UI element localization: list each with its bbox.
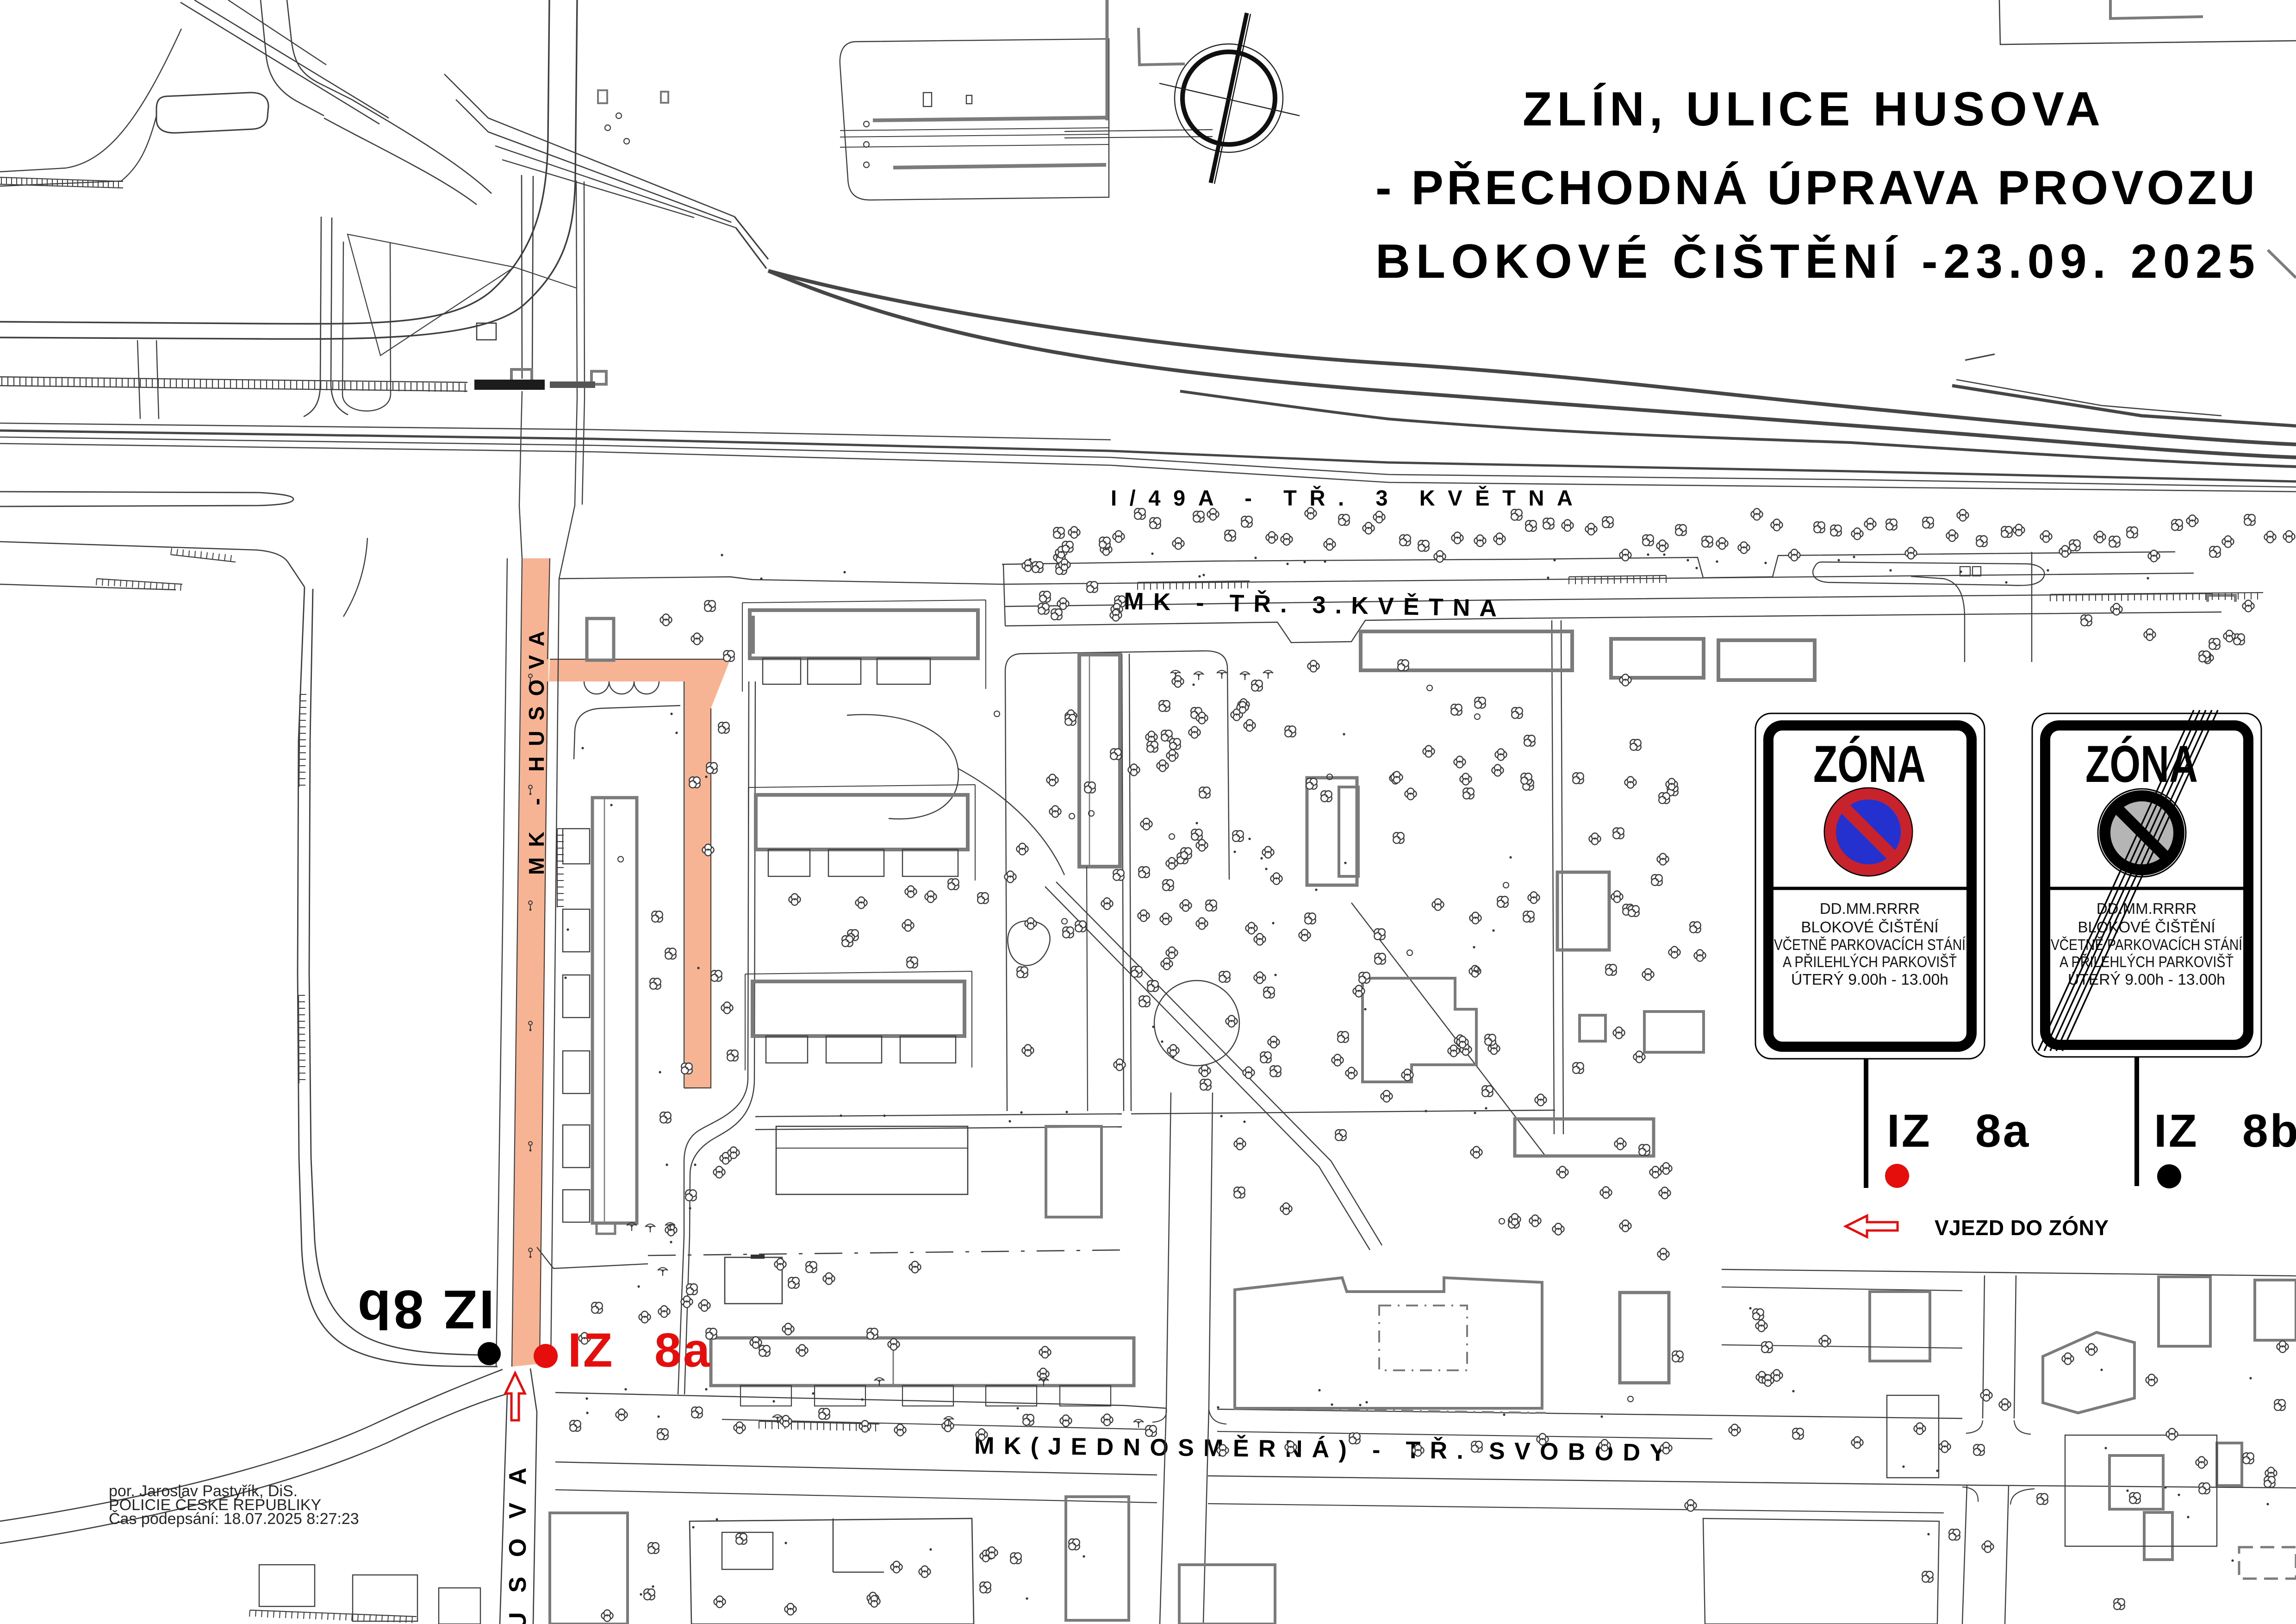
svg-text:8a: 8a <box>1975 1105 2030 1157</box>
svg-text:ZLÍN, ULICE HUSOVA: ZLÍN, ULICE HUSOVA <box>1523 82 2112 136</box>
svg-text:8a: 8a <box>654 1324 712 1377</box>
svg-text:A PŘILEHLÝCH PARKOVIŠŤ: A PŘILEHLÝCH PARKOVIŠŤ <box>1783 953 1957 970</box>
svg-text:I/49A - TŘ. 3 KVĚTNA: I/49A - TŘ. 3 KVĚTNA <box>1111 486 1581 510</box>
svg-text:ZÓNA: ZÓNA <box>1813 735 1926 793</box>
svg-text:MK - HUSOVA: MK - HUSOVA <box>524 623 548 875</box>
svg-text:VJEZD DO ZÓNY: VJEZD DO ZÓNY <box>1935 1216 2114 1240</box>
svg-text:- PŘECHODNÁ ÚPRAVA PROVOZU: - PŘECHODNÁ ÚPRAVA PROVOZU <box>1375 161 2267 215</box>
svg-text:IZ: IZ <box>568 1324 614 1377</box>
svg-text:IZ 8b: IZ 8b <box>355 1279 494 1340</box>
svg-text:VČETNĚ PARKOVACÍCH STÁNÍ: VČETNĚ PARKOVACÍCH STÁNÍ <box>1774 936 1966 953</box>
svg-text:ÚTERÝ 9.00h - 13.00h: ÚTERÝ 9.00h - 13.00h <box>1791 971 1948 988</box>
svg-text:BLOKOVÉ ČIŠTĚNÍ -23.09. 2025: BLOKOVÉ ČIŠTĚNÍ -23.09. 2025 <box>1375 234 2267 288</box>
svg-text:8b: 8b <box>2242 1105 2296 1157</box>
svg-text:IZ: IZ <box>1887 1105 1932 1157</box>
svg-text:DD.MM.RRRR: DD.MM.RRRR <box>1820 900 1920 917</box>
svg-text:BLOKOVÉ ČIŠTĚNÍ: BLOKOVÉ ČIŠTĚNÍ <box>1801 918 1939 936</box>
svg-text:IZ: IZ <box>2154 1105 2199 1157</box>
svg-text:Čas podepsání: 18.07.2025 8:27: Čas podepsání: 18.07.2025 8:27:23 <box>109 1510 359 1528</box>
svg-text:VČETNĚ PARKOVACÍCH STÁNÍ: VČETNĚ PARKOVACÍCH STÁNÍ <box>2051 936 2243 953</box>
